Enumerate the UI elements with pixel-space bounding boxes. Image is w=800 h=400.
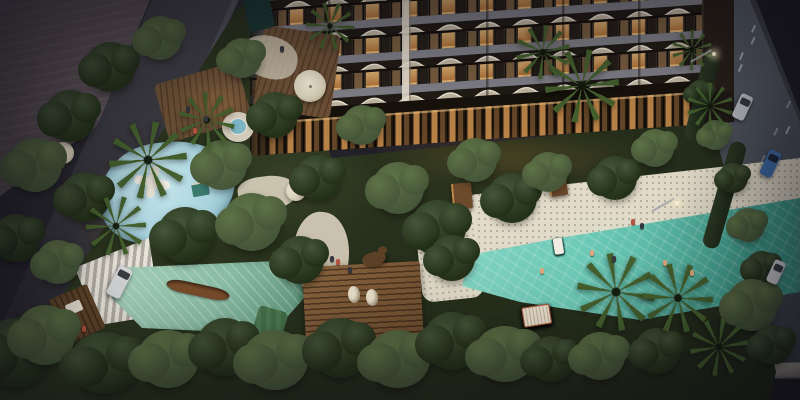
tree-canopy	[528, 152, 568, 192]
street-lamp-light	[712, 52, 716, 56]
tree-canopy	[453, 138, 497, 182]
person-dot	[280, 46, 284, 52]
person-dot	[186, 106, 190, 112]
tree-canopy	[36, 240, 80, 284]
person-dot	[612, 256, 616, 262]
person-dot	[82, 326, 86, 332]
tree-canopy	[752, 325, 792, 365]
tree-canopy	[242, 330, 308, 390]
street-lamp-light	[675, 201, 679, 205]
tree-canopy	[295, 155, 341, 201]
tree-canopy	[634, 328, 680, 374]
person-dot	[663, 260, 667, 266]
tree-canopy	[342, 105, 382, 145]
tree-canopy	[636, 129, 674, 167]
person-dot	[590, 250, 594, 256]
tree-canopy	[429, 235, 475, 281]
tree-canopy	[222, 38, 262, 78]
tree-canopy	[593, 156, 637, 200]
person-dot	[336, 259, 340, 265]
person-dot	[690, 270, 694, 276]
tree-canopy	[157, 207, 213, 263]
cabana	[521, 304, 552, 328]
person-dot	[631, 219, 635, 225]
tree-canopy	[85, 42, 135, 92]
tree-canopy	[252, 92, 298, 138]
person-dot	[640, 223, 644, 229]
tree-canopy	[44, 90, 96, 142]
person-dot	[348, 267, 352, 273]
person-dot	[204, 116, 208, 122]
tree-canopy	[575, 332, 625, 380]
tree-canopy	[372, 162, 424, 214]
palm-tree	[109, 121, 187, 199]
tree-canopy	[718, 163, 748, 193]
pool-lounger	[553, 238, 564, 255]
tree-canopy	[8, 138, 62, 192]
lit-core-column	[402, 0, 409, 105]
tree-canopy	[731, 208, 765, 242]
tree-canopy	[223, 193, 281, 251]
person-dot	[540, 268, 544, 274]
tree-canopy	[138, 16, 182, 60]
tree-canopy	[276, 236, 324, 284]
person-dot	[193, 128, 197, 134]
patio-umbrella	[294, 70, 326, 102]
aerial-render-scene	[0, 0, 800, 400]
person-dot	[330, 256, 334, 262]
